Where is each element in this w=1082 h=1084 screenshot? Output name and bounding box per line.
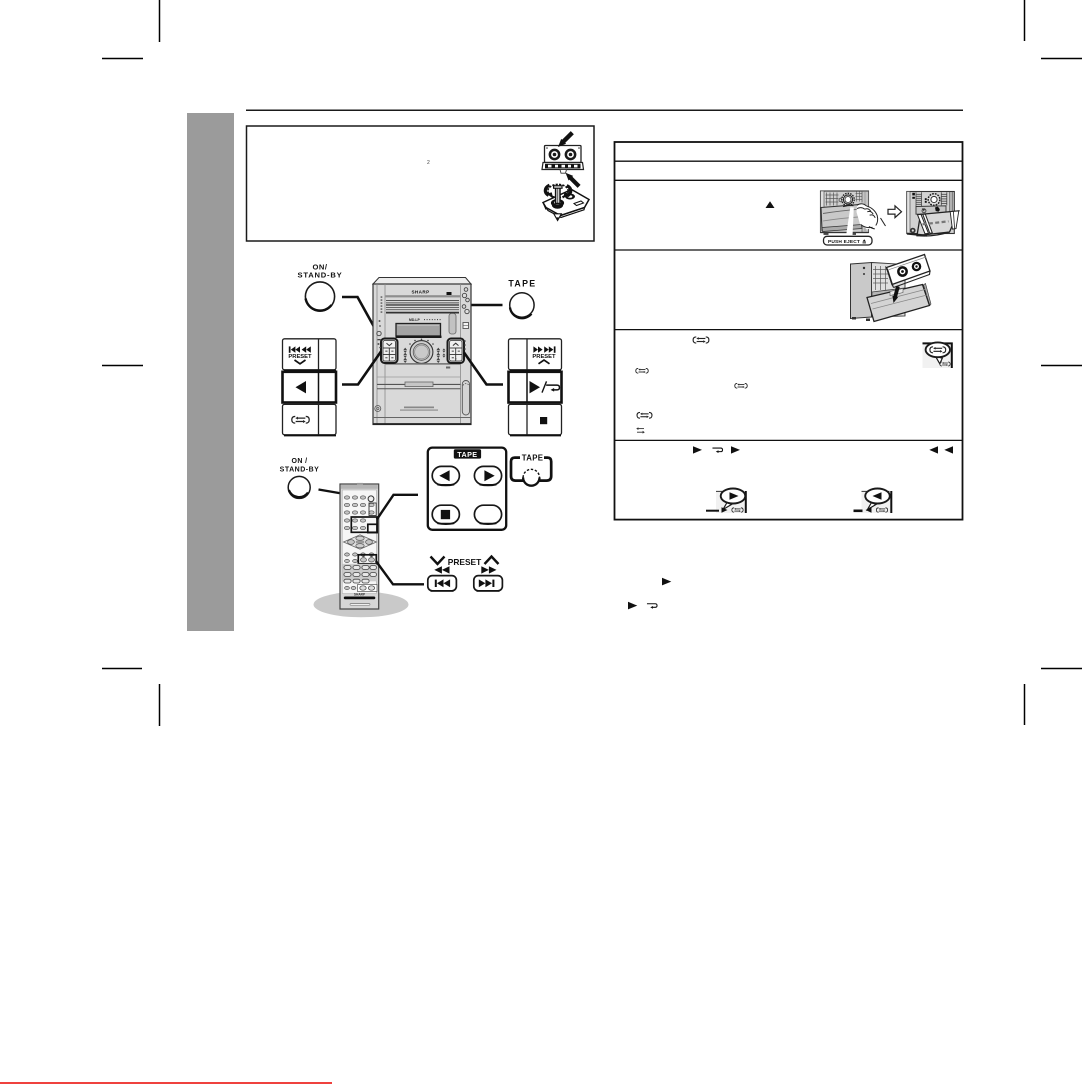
svg-text:MD-LP: MD-LP [409,318,420,322]
svg-text:SHARP: SHARP [411,289,429,294]
svg-text:SHARP: SHARP [354,593,366,597]
svg-text:TAPE: TAPE [508,278,536,288]
svg-text:2: 2 [427,160,430,166]
svg-text:TAPE: TAPE [457,450,477,459]
svg-text:PUSH EJECT: PUSH EJECT [828,239,860,245]
svg-text:TAPE: TAPE [522,453,543,462]
svg-text:PRESET: PRESET [448,557,482,567]
svg-text:STAND-BY: STAND-BY [280,466,320,473]
svg-text:STAND-BY: STAND-BY [297,271,342,280]
svg-text:ON /: ON / [292,458,308,465]
svg-text:PRESET: PRESET [288,354,312,360]
